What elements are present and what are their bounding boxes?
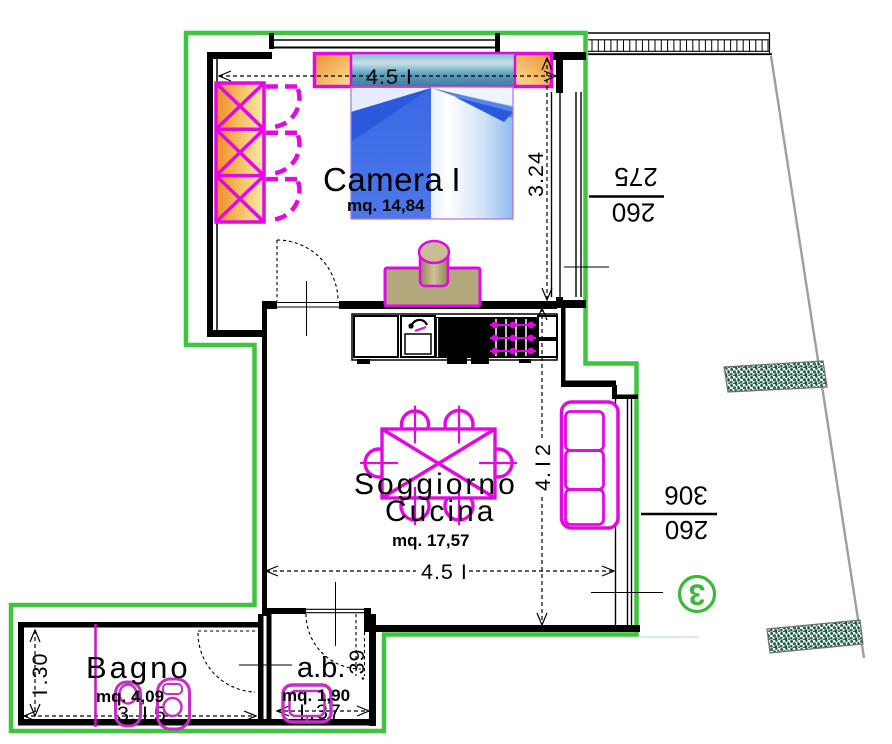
svg-text:mq. 14,84: mq. 14,84 (347, 196, 425, 215)
svg-text:4.I2: 4.I2 (531, 443, 555, 491)
svg-text:275: 275 (614, 162, 657, 192)
svg-text:mq. 17,57: mq. 17,57 (392, 531, 470, 550)
svg-text:3.24: 3.24 (524, 151, 548, 197)
svg-text:mq. 1,90: mq. 1,90 (282, 686, 350, 705)
svg-text:4.5I: 4.5I (366, 65, 413, 89)
svg-text:260: 260 (612, 198, 655, 228)
svg-text:306: 306 (664, 481, 707, 511)
svg-text:I.30: I.30 (28, 653, 52, 696)
svg-text:mq. 4,09: mq. 4,09 (96, 687, 164, 706)
svg-text:Bagno: Bagno (86, 650, 191, 685)
svg-text:3: 3 (689, 578, 706, 611)
svg-text:260: 260 (665, 515, 708, 545)
svg-text:Cucina: Cucina (385, 495, 496, 528)
svg-text:.39: .39 (345, 649, 369, 682)
svg-text:CameraI: CameraI (323, 161, 461, 198)
svg-text:a.b.: a.b. (297, 652, 345, 684)
svg-text:4.5I: 4.5I (421, 560, 468, 584)
